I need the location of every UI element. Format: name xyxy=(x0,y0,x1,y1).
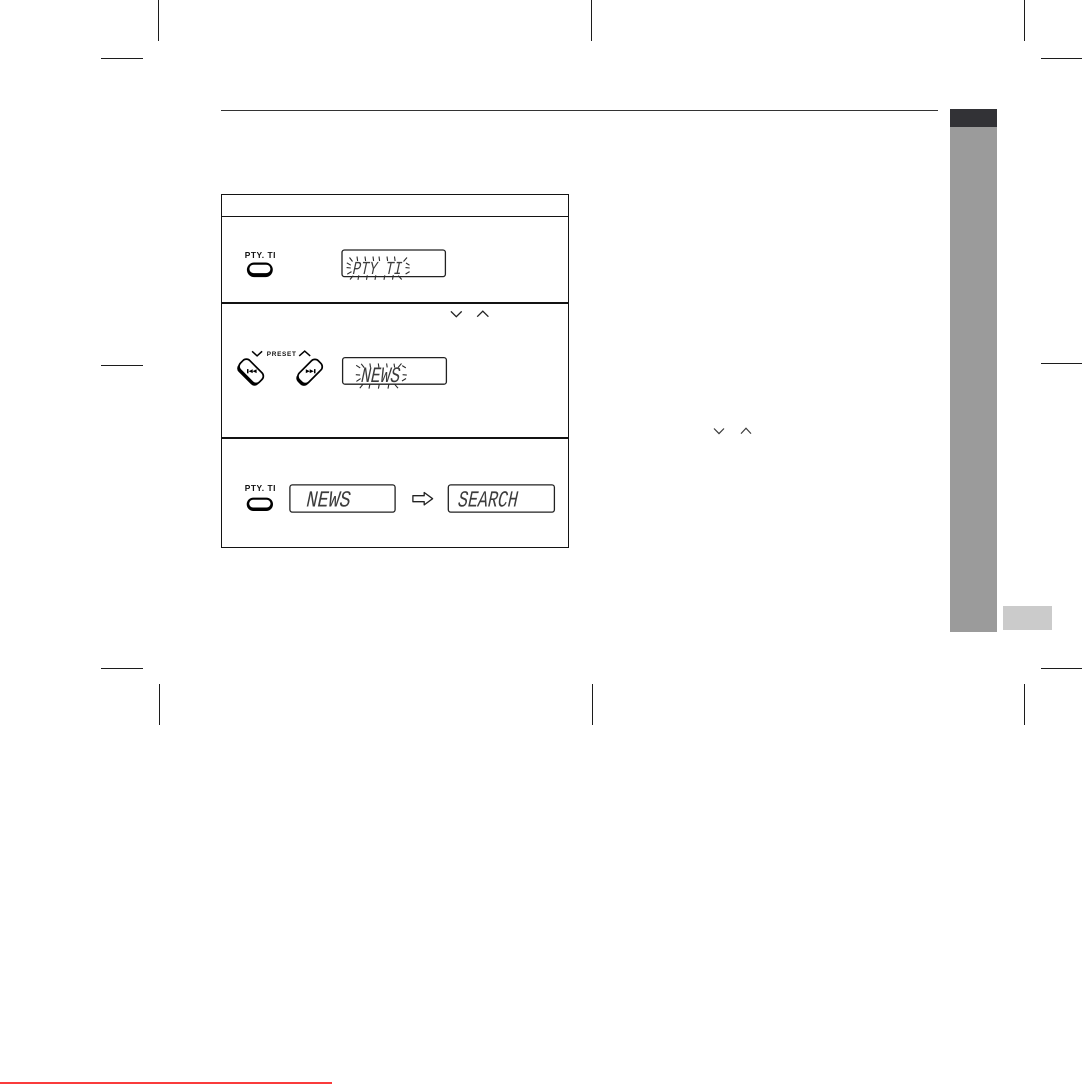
svg-text:NEWS: NEWS xyxy=(304,488,354,514)
svg-text:PRESET: PRESET xyxy=(267,351,297,358)
svg-text:NEWS: NEWS xyxy=(359,364,403,389)
svg-text:PTY. TI: PTY. TI xyxy=(245,250,276,260)
svg-text:PTY. TI: PTY. TI xyxy=(245,483,276,493)
svg-text:SEARCH: SEARCH xyxy=(455,489,520,515)
